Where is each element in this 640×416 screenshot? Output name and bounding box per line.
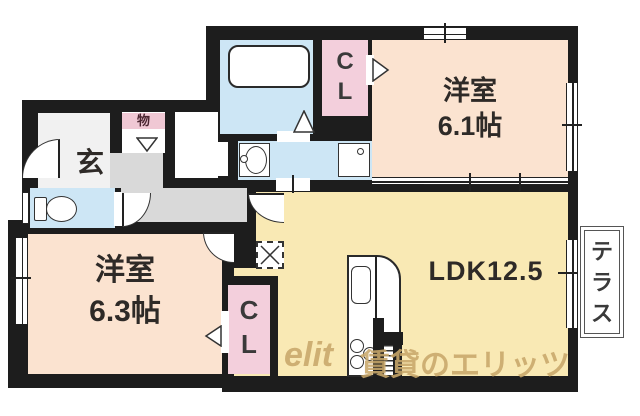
western2-name: 洋室 xyxy=(28,250,222,291)
washbasin-bowl xyxy=(245,146,267,174)
washing-machine-area xyxy=(256,241,284,269)
storage-folding-door-icon xyxy=(136,137,158,153)
washroom-nook xyxy=(175,112,218,178)
closet-top-line2: L xyxy=(322,77,368,107)
closet-bottom-label: C L xyxy=(228,293,270,361)
window-western2-left xyxy=(15,238,28,324)
terrace-char-3: ス xyxy=(591,298,613,329)
watermark-logo: elit xyxy=(284,336,333,375)
western1-name: 洋室 xyxy=(372,74,568,109)
laundry-pan xyxy=(338,143,370,177)
bathroom-folding-door-icon xyxy=(293,110,315,133)
door-gap-nook-washroom xyxy=(217,142,228,176)
washbasin-tap xyxy=(240,155,248,163)
sliding-door-tick-1 xyxy=(469,173,471,191)
watermark-text: 賃貸のエリッツ xyxy=(360,340,570,384)
terrace-box: テ ラ ス xyxy=(580,226,624,338)
sliding-door-tick-2 xyxy=(519,173,521,191)
sliding-door-stub xyxy=(372,184,424,192)
window-toilet-slit xyxy=(22,192,29,224)
bathtub xyxy=(228,45,310,88)
western1-size: 6.1帖 xyxy=(372,109,568,144)
wall-closet-bottom-right xyxy=(270,276,278,388)
floorplan-canvas: テ ラ ス 玄 物 C L 洋室 6.1帖 洋室 6.3帖 LDK12.5 C … xyxy=(0,0,640,416)
storage-label: 物 xyxy=(122,113,165,129)
toilet-bowl xyxy=(46,196,77,222)
western2-label: 洋室 6.3帖 xyxy=(28,250,222,332)
wall-stub-ldk xyxy=(232,224,256,268)
western1-label: 洋室 6.1帖 xyxy=(372,74,568,144)
window-tick-top xyxy=(444,23,446,43)
entrance-label: 玄 xyxy=(60,141,120,181)
door-tick-washroom xyxy=(292,175,294,193)
washing-machine-x-icon xyxy=(258,243,282,267)
closet-bottom-line2: L xyxy=(228,327,270,361)
closet-top-line1: C xyxy=(322,47,368,77)
door-gap-toilet xyxy=(114,192,122,226)
terrace-char-1: テ xyxy=(591,236,613,267)
kitchen-sink xyxy=(351,266,371,304)
closet-top-label: C L xyxy=(322,47,368,107)
laundry-pan-drain xyxy=(357,148,364,155)
ldk-label: LDK12.5 xyxy=(404,256,568,287)
western2-size: 6.3帖 xyxy=(28,291,222,332)
closet-bottom-line1: C xyxy=(228,293,270,327)
terrace-label: テ ラ ス xyxy=(584,230,620,334)
terrace-char-2: ラ xyxy=(591,267,613,298)
